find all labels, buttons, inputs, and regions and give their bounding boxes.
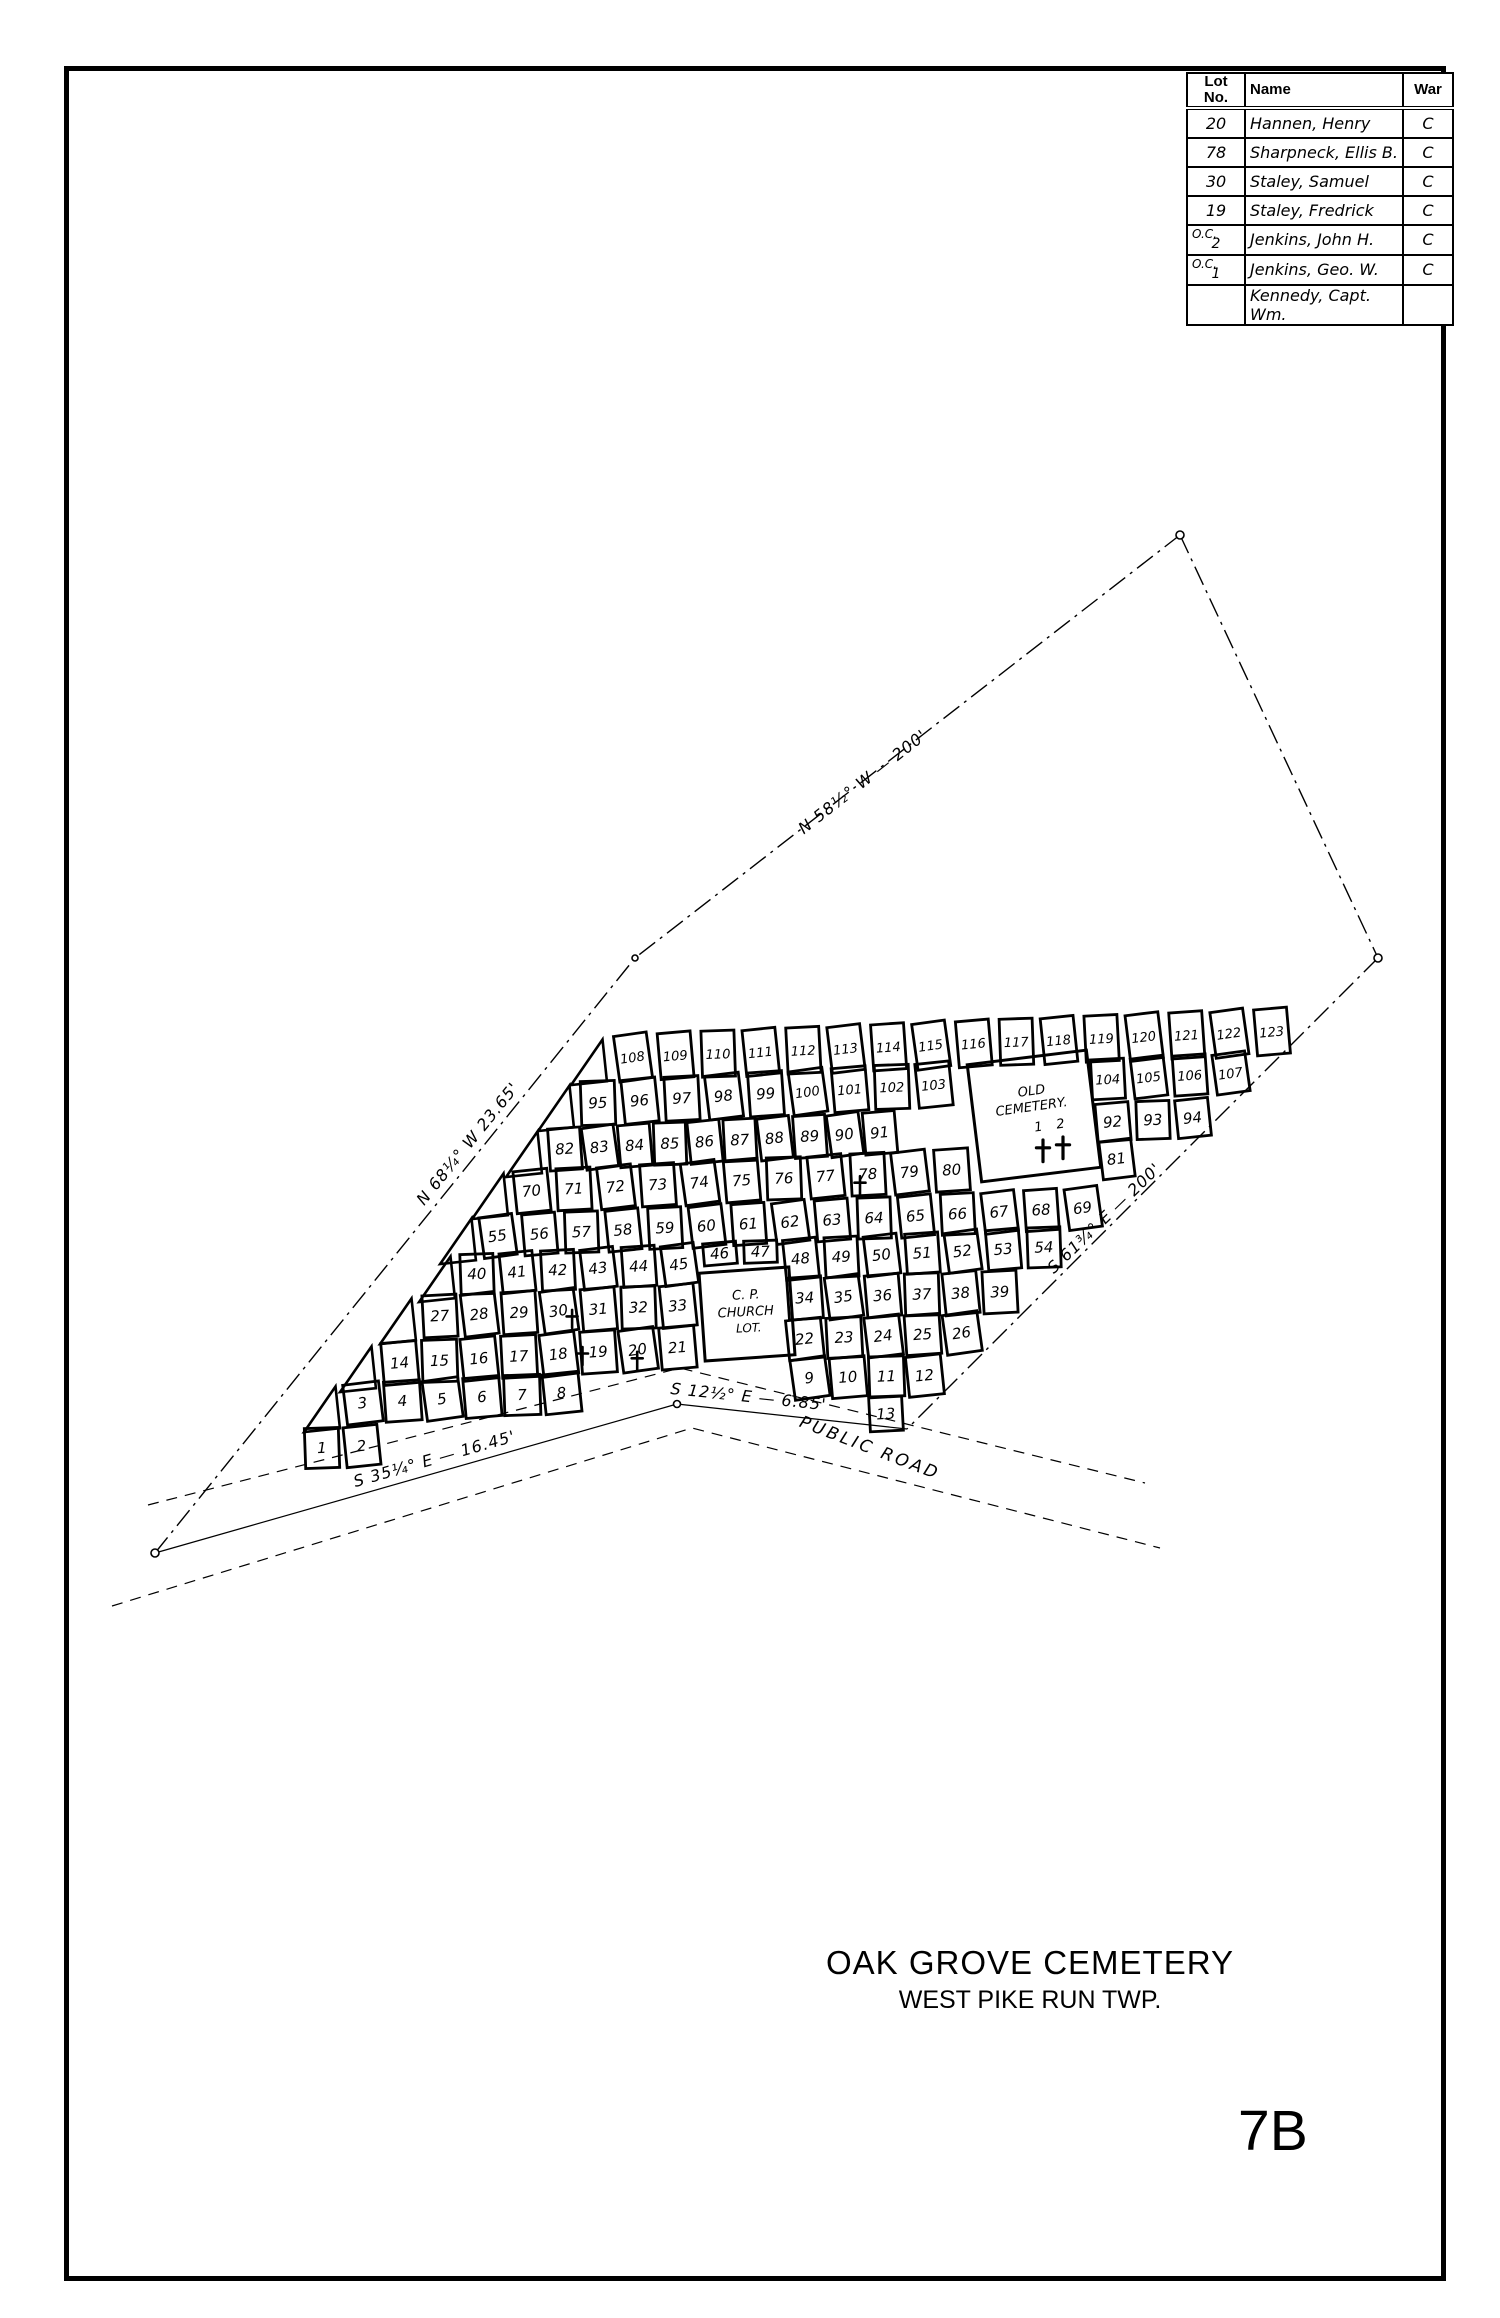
lot-number: 98 bbox=[713, 1086, 734, 1106]
lot-number: 63 bbox=[822, 1210, 843, 1230]
lot-number: 4 bbox=[397, 1392, 408, 1411]
cell-lot-no: 20 bbox=[1187, 108, 1245, 138]
lot-number: 23 bbox=[834, 1328, 854, 1347]
lot-number: 34 bbox=[794, 1288, 814, 1307]
table-header-row: Lot No. Name War bbox=[1187, 73, 1453, 108]
lot-number: 74 bbox=[689, 1172, 710, 1192]
row-triangle-lot bbox=[567, 1039, 607, 1085]
lot-number: 15 bbox=[430, 1351, 450, 1370]
corner-marker bbox=[632, 955, 638, 961]
lot-number: 28 bbox=[469, 1304, 490, 1324]
lot-number: 57 bbox=[572, 1223, 592, 1242]
cell-war: C bbox=[1403, 167, 1453, 196]
lot-number: 99 bbox=[755, 1084, 775, 1103]
lot-number: 35 bbox=[833, 1287, 854, 1307]
road-edge-south bbox=[112, 1428, 1160, 1606]
lot-number: 116 bbox=[960, 1036, 986, 1053]
row-triangle-lot bbox=[376, 1298, 416, 1344]
lot-number: 71 bbox=[564, 1179, 584, 1198]
lot-number: 64 bbox=[864, 1209, 884, 1228]
lot-number: 82 bbox=[554, 1139, 574, 1158]
lot-number: 3 bbox=[357, 1394, 369, 1413]
cell-lot-no: 78 bbox=[1187, 138, 1245, 167]
lot-number: 87 bbox=[730, 1130, 750, 1149]
lot-number: 123 bbox=[1259, 1024, 1285, 1041]
lot-number: 107 bbox=[1217, 1065, 1244, 1083]
lot-number: 19 bbox=[588, 1342, 608, 1361]
lot-number: 31 bbox=[588, 1299, 609, 1319]
lot-number: 115 bbox=[917, 1037, 944, 1055]
lot-number: 83 bbox=[589, 1137, 610, 1157]
lot-number: 55 bbox=[487, 1226, 508, 1246]
cell-war: C bbox=[1403, 108, 1453, 138]
road-edge-north bbox=[148, 1368, 1145, 1505]
lot-number: 32 bbox=[628, 1298, 648, 1317]
lot-number: 59 bbox=[655, 1219, 675, 1238]
cell-lot-no bbox=[1187, 285, 1245, 325]
lot-number: 86 bbox=[694, 1132, 715, 1152]
lot-number: 70 bbox=[521, 1181, 542, 1201]
title-block: OAK GROVE CEMETERY WEST PIKE RUN TWP. bbox=[780, 1944, 1280, 2015]
lot-number: 40 bbox=[467, 1265, 487, 1284]
lot-number: 45 bbox=[668, 1254, 689, 1274]
page-title: OAK GROVE CEMETERY bbox=[780, 1944, 1280, 1982]
table-row: 30Staley, SamuelC bbox=[1187, 167, 1453, 196]
lot-number: 27 bbox=[430, 1306, 450, 1325]
lot-number: 95 bbox=[588, 1094, 608, 1113]
header-war: War bbox=[1403, 73, 1453, 108]
lot-number: 122 bbox=[1216, 1026, 1243, 1044]
lot-number: 111 bbox=[747, 1045, 773, 1063]
cell-lot-no: O.C.1 bbox=[1187, 255, 1245, 285]
corner-marker bbox=[674, 1401, 681, 1408]
lot-number: 73 bbox=[647, 1175, 667, 1194]
cell-name: Staley, Fredrick bbox=[1245, 196, 1403, 225]
bearing-label: S 12½° E — 6.85' bbox=[670, 1379, 828, 1414]
bearing-label: S 35¼° E — 16.45' bbox=[351, 1426, 517, 1490]
lot-number: 50 bbox=[871, 1245, 892, 1265]
corner-marker bbox=[1176, 531, 1184, 539]
old-cemetery-grave-cross bbox=[1056, 1137, 1069, 1159]
cell-name: Hannen, Henry bbox=[1245, 108, 1403, 138]
lot-number: 60 bbox=[696, 1216, 717, 1236]
lot-number: 41 bbox=[507, 1262, 528, 1282]
old-cemetery-grave-number: 1 bbox=[1033, 1120, 1043, 1136]
cell-name: Jenkins, Geo. W. bbox=[1245, 255, 1403, 285]
lot-number: 56 bbox=[529, 1224, 550, 1244]
row-triangle-lot bbox=[468, 1173, 508, 1219]
bearing-label: N 58½° W — 200' bbox=[795, 726, 931, 838]
lot-number: 68 bbox=[1031, 1200, 1051, 1219]
lot-number: 89 bbox=[799, 1127, 819, 1146]
lot-number: 66 bbox=[948, 1205, 968, 1224]
lot-number: 90 bbox=[834, 1124, 855, 1144]
lot-number: 114 bbox=[875, 1040, 901, 1057]
lot-number: 102 bbox=[879, 1080, 904, 1096]
lot-number: 49 bbox=[831, 1247, 851, 1266]
lot-number: 81 bbox=[1106, 1149, 1127, 1169]
lot-number: 52 bbox=[952, 1241, 973, 1261]
lot-number: 100 bbox=[794, 1084, 821, 1102]
lot-number: 29 bbox=[509, 1303, 529, 1322]
lot-number: 9 bbox=[803, 1368, 815, 1387]
lot-number: 25 bbox=[912, 1325, 932, 1344]
lot-number: 1 bbox=[317, 1439, 327, 1457]
lot-number: 75 bbox=[731, 1171, 752, 1191]
lot-number: 110 bbox=[705, 1047, 730, 1063]
cell-name: Jenkins, John H. bbox=[1245, 225, 1403, 255]
old-cemetery-grave-number: 2 bbox=[1055, 1117, 1065, 1133]
lot-number: 10 bbox=[838, 1367, 859, 1387]
lot-number: 43 bbox=[587, 1258, 608, 1278]
table-row: O.C.1Jenkins, Geo. W.C bbox=[1187, 255, 1453, 285]
table-row: 78Sharpneck, Ellis B.C bbox=[1187, 138, 1453, 167]
lot-number: 14 bbox=[389, 1353, 410, 1373]
cell-war: C bbox=[1403, 196, 1453, 225]
table-row: O.C.2Jenkins, John H.C bbox=[1187, 225, 1453, 255]
lot-number: 13 bbox=[876, 1405, 896, 1424]
lot-number: 46 bbox=[709, 1244, 730, 1264]
lot-number: 58 bbox=[612, 1220, 633, 1240]
lot-number: 77 bbox=[815, 1166, 836, 1186]
lot-number: 54 bbox=[1034, 1238, 1054, 1257]
lot-number: 24 bbox=[872, 1326, 893, 1346]
lot-number: 44 bbox=[628, 1257, 648, 1276]
lot-number: 36 bbox=[872, 1286, 893, 1306]
lot-number: 103 bbox=[921, 1077, 947, 1095]
church-lot-label: C. P. bbox=[732, 1287, 760, 1303]
page-subtitle: WEST PIKE RUN TWP. bbox=[780, 1986, 1280, 2015]
lot-number: 120 bbox=[1131, 1029, 1157, 1047]
lot-number: 8 bbox=[556, 1384, 567, 1403]
cell-war: C bbox=[1403, 255, 1453, 285]
lot-number: 109 bbox=[662, 1048, 688, 1065]
lot-number: 11 bbox=[877, 1367, 897, 1386]
cell-name: Kennedy, Capt. Wm. bbox=[1245, 285, 1403, 325]
corner-marker bbox=[151, 1549, 159, 1557]
table-row: Kennedy, Capt. Wm. bbox=[1187, 285, 1453, 325]
lot-number: 62 bbox=[779, 1212, 800, 1232]
cell-lot-no: O.C.2 bbox=[1187, 225, 1245, 255]
lot-number: 7 bbox=[517, 1386, 528, 1404]
lot-number: 118 bbox=[1046, 1033, 1072, 1051]
church-lot-label: CHURCH bbox=[717, 1304, 774, 1322]
cell-lot-no: 30 bbox=[1187, 167, 1245, 196]
header-name: Name bbox=[1245, 73, 1403, 108]
lot-number: 97 bbox=[672, 1089, 692, 1108]
veteran-lot-table: Lot No. Name War 20Hannen, HenryC78Sharp… bbox=[1186, 72, 1454, 326]
lot-number: 48 bbox=[790, 1249, 811, 1269]
row-triangle-lot bbox=[300, 1386, 340, 1432]
lot-number: 112 bbox=[790, 1044, 816, 1060]
lot-number: 6 bbox=[476, 1388, 487, 1407]
lot-number: 42 bbox=[548, 1261, 568, 1280]
lot-number: 79 bbox=[899, 1162, 920, 1182]
lot-number: 117 bbox=[1004, 1035, 1030, 1051]
lot-number: 76 bbox=[774, 1169, 794, 1188]
lot-number: 21 bbox=[667, 1338, 688, 1358]
lot-number: 26 bbox=[951, 1323, 972, 1343]
lot-number: 84 bbox=[624, 1136, 645, 1156]
lot-number: 108 bbox=[619, 1049, 646, 1067]
lot-number: 80 bbox=[941, 1160, 961, 1179]
lot-number: 51 bbox=[912, 1243, 932, 1262]
cell-war bbox=[1403, 285, 1453, 325]
lot-number: 5 bbox=[436, 1389, 448, 1408]
header-lot-no: Lot No. bbox=[1187, 73, 1245, 108]
old-cemetery-grave-cross bbox=[1036, 1140, 1049, 1162]
table-row: 19Staley, FredrickC bbox=[1187, 196, 1453, 225]
lot-number: 22 bbox=[794, 1329, 815, 1349]
lot-number: 96 bbox=[629, 1091, 650, 1111]
lot-number: 37 bbox=[912, 1285, 932, 1304]
cell-war: C bbox=[1403, 138, 1453, 167]
lot-number: 105 bbox=[1135, 1070, 1161, 1088]
lot-number: 16 bbox=[468, 1349, 489, 1369]
lot-number: 53 bbox=[993, 1240, 1014, 1260]
lot-number: 113 bbox=[832, 1041, 858, 1059]
lot-number: 47 bbox=[750, 1242, 770, 1261]
lot-number: 106 bbox=[1177, 1068, 1203, 1085]
cell-war: C bbox=[1403, 225, 1453, 255]
lot-number: 18 bbox=[548, 1344, 569, 1364]
lot-number: 12 bbox=[914, 1366, 935, 1386]
lot-number: 92 bbox=[1102, 1112, 1123, 1132]
table-row: 20Hannen, HenryC bbox=[1187, 108, 1453, 138]
lot-number: 93 bbox=[1143, 1111, 1163, 1130]
boundary-line-northeast bbox=[1180, 535, 1378, 958]
boundary-line-road-left bbox=[155, 1404, 677, 1553]
lot-number: 67 bbox=[988, 1202, 1010, 1222]
corner-marker bbox=[1374, 954, 1382, 962]
lot-number: 38 bbox=[950, 1283, 971, 1303]
lot-number: 88 bbox=[764, 1128, 785, 1148]
lot-number: 72 bbox=[605, 1177, 626, 1197]
lot-number: 2 bbox=[356, 1437, 367, 1456]
church-lot-label: LOT. bbox=[736, 1320, 762, 1335]
cell-name: Sharpneck, Ellis B. bbox=[1245, 138, 1403, 167]
lot-number: 119 bbox=[1089, 1032, 1115, 1048]
lot-number: 39 bbox=[990, 1283, 1010, 1302]
lot-number: 94 bbox=[1182, 1108, 1203, 1128]
scanned-cemetery-plat-page: { "page": { "number": "7B" }, "title": {… bbox=[0, 0, 1500, 2318]
lot-number: 121 bbox=[1174, 1028, 1200, 1045]
row-triangle-lot bbox=[436, 1218, 476, 1264]
cell-name: Staley, Samuel bbox=[1245, 167, 1403, 196]
row-triangle-lot bbox=[534, 1085, 574, 1131]
lot-number: 17 bbox=[509, 1347, 529, 1366]
page-number: 7B bbox=[1238, 2098, 1308, 2164]
lot-number: 85 bbox=[660, 1134, 680, 1153]
lot-number: 65 bbox=[905, 1206, 926, 1226]
old-cemetery-box bbox=[967, 1050, 1100, 1182]
cell-lot-no: 19 bbox=[1187, 196, 1245, 225]
lot-number: 61 bbox=[738, 1214, 758, 1233]
lot-number: 91 bbox=[869, 1123, 890, 1143]
lot-number: 101 bbox=[837, 1082, 863, 1099]
lot-number: 104 bbox=[1095, 1072, 1121, 1088]
lot-number: 33 bbox=[667, 1296, 688, 1316]
lot-number: 69 bbox=[1072, 1198, 1093, 1218]
lot-number: 30 bbox=[548, 1301, 569, 1321]
